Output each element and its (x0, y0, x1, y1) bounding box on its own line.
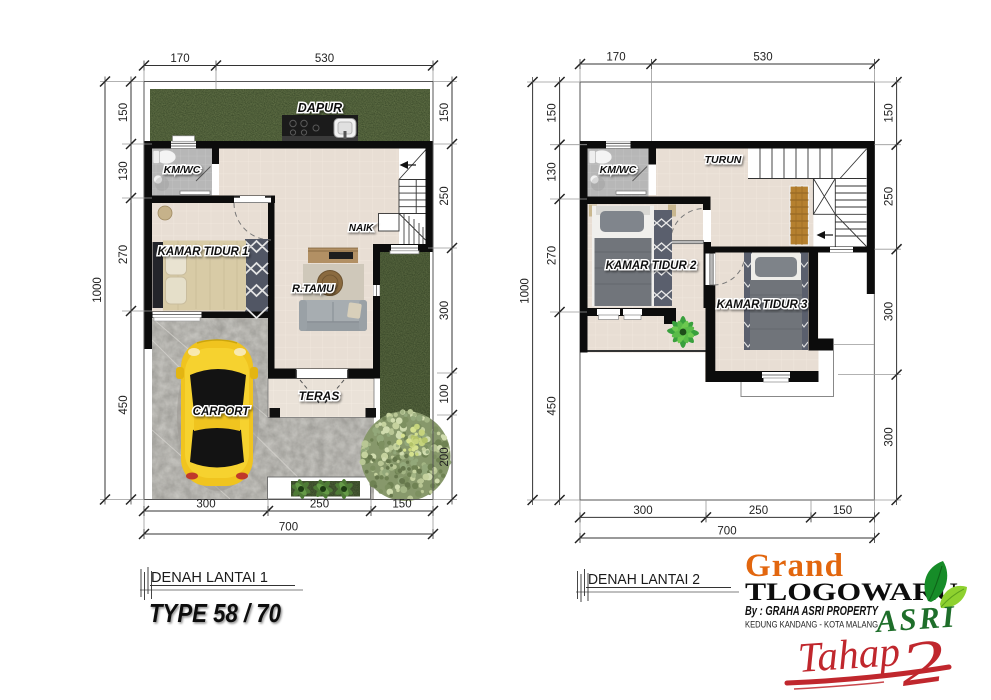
svg-text:NAIK: NAIK (349, 223, 374, 234)
svg-text:TURUN: TURUN (705, 154, 742, 166)
svg-text:TYPE 58 / 70: TYPE 58 / 70 (149, 598, 281, 628)
svg-text:1000: 1000 (520, 278, 532, 304)
svg-text:200: 200 (439, 447, 451, 466)
svg-text:DAPUR: DAPUR (298, 101, 342, 115)
svg-text:300: 300 (196, 499, 215, 511)
svg-text:250: 250 (439, 186, 451, 205)
svg-text:450: 450 (118, 395, 130, 414)
svg-text:2: 2 (895, 625, 949, 700)
svg-text:KM/WC: KM/WC (600, 164, 637, 176)
svg-text:300: 300 (633, 505, 652, 517)
svg-text:450: 450 (547, 396, 559, 415)
svg-text:TERAS: TERAS (299, 389, 340, 403)
svg-text:150: 150 (392, 499, 411, 511)
svg-text:By : GRAHA ASRI PROPERTY: By : GRAHA ASRI PROPERTY (745, 604, 879, 618)
svg-text:KAMAR TIDUR 2: KAMAR TIDUR 2 (606, 260, 697, 272)
svg-text:300: 300 (439, 301, 451, 320)
svg-text:130: 130 (547, 162, 559, 181)
svg-text:DENAH LANTAI 1: DENAH LANTAI 1 (151, 569, 268, 586)
svg-text:270: 270 (118, 245, 130, 264)
svg-text:250: 250 (884, 187, 896, 206)
svg-text:150: 150 (833, 505, 852, 517)
svg-text:150: 150 (439, 103, 451, 122)
svg-text:700: 700 (279, 522, 298, 534)
svg-text:1000: 1000 (92, 277, 104, 303)
svg-text:CARPORT: CARPORT (193, 406, 251, 418)
svg-text:530: 530 (315, 53, 334, 65)
svg-text:170: 170 (170, 53, 189, 65)
svg-text:DENAH LANTAI 2: DENAH LANTAI 2 (588, 571, 700, 588)
svg-text:130: 130 (118, 161, 130, 180)
svg-text:530: 530 (753, 52, 772, 64)
svg-text:R.TAMU: R.TAMU (292, 283, 335, 295)
svg-text:170: 170 (606, 52, 625, 64)
svg-text:150: 150 (118, 103, 130, 122)
svg-text:700: 700 (717, 526, 736, 538)
svg-text:300: 300 (884, 427, 896, 446)
svg-text:100: 100 (439, 384, 451, 403)
svg-text:300: 300 (884, 302, 896, 321)
svg-text:KEDUNG KANDANG - KOTA MALANG: KEDUNG KANDANG - KOTA MALANG (745, 620, 878, 630)
svg-text:KM/WC: KM/WC (164, 164, 201, 176)
svg-text:270: 270 (547, 246, 559, 265)
svg-text:150: 150 (884, 103, 896, 122)
svg-text:KAMAR TIDUR 1: KAMAR TIDUR 1 (158, 246, 249, 258)
svg-text:250: 250 (749, 505, 768, 517)
svg-text:KAMAR TIDUR 3: KAMAR TIDUR 3 (717, 299, 808, 311)
svg-text:250: 250 (310, 499, 329, 511)
svg-text:150: 150 (547, 103, 559, 122)
